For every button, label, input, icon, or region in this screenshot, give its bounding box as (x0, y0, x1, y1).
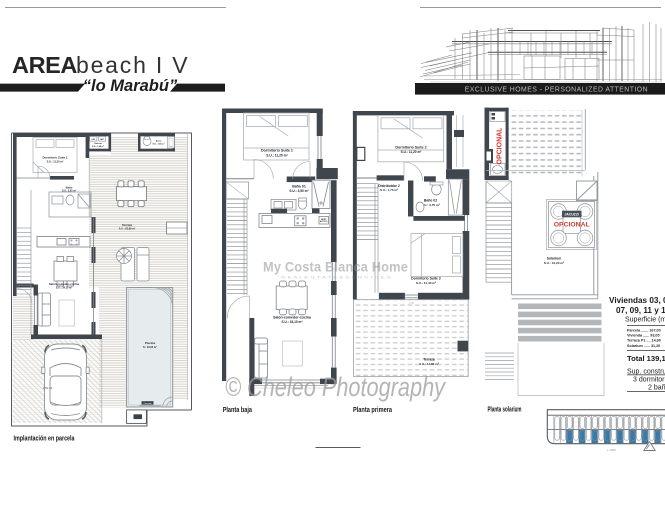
svg-text:S.U.: 1,65 m²: S.U.: 1,65 m² (152, 142, 164, 145)
svg-text:Cascada: Cascada (143, 403, 152, 405)
svg-text:Parcela ....... 167,00: Parcela ....... 167,00 (627, 329, 661, 333)
svg-text:EXCLUSIVE HOMES - PERSONALIZED: EXCLUSIVE HOMES - PERSONALIZED ATTENTION (465, 86, 648, 93)
svg-text:Dormitorio Suite 3: Dormitorio Suite 3 (411, 276, 441, 280)
svg-text:My Costa Blanca Home: My Costa Blanca Home (263, 260, 408, 275)
svg-text:Distribuidor 2: Distribuidor 2 (378, 184, 400, 188)
svg-text:S.U.: 11,20 m²: S.U.: 11,20 m² (266, 153, 288, 157)
svg-text:Planta solarium: Planta solarium (488, 405, 522, 414)
svg-text:07, 09, 11 y 13: 07, 09, 11 y 13 (616, 306, 665, 315)
svg-text:S.U.: 3,05 m²: S.U.: 3,05 m² (62, 189, 77, 193)
svg-text:S.U.: 34,10 m²: S.U.: 34,10 m² (56, 286, 73, 290)
svg-text:Viviendas 03, 05,: Viviendas 03, 05, (609, 296, 665, 305)
svg-text:Implantación en parcela: Implantación en parcela (14, 434, 76, 443)
svg-text:OPCIONAL: OPCIONAL (554, 222, 590, 229)
svg-text:e: 1/500: e: 1/500 (607, 449, 616, 452)
svg-text:Vivienda ...... 93,05: Vivienda ...... 93,05 (627, 334, 660, 338)
svg-text:S.: 18,22 m²: S.: 18,22 m² (143, 345, 157, 349)
svg-text:Terraza P1 .... 14,80: Terraza P1 .... 14,80 (627, 339, 661, 343)
svg-text:AREA: AREA (12, 52, 77, 78)
svg-text:3 dormitorios: 3 dormitorios (633, 377, 665, 384)
svg-text:S.U.: 11,20 m²: S.U.: 11,20 m² (401, 150, 422, 154)
svg-text:S.U.: 1,40 m²: S.U.: 1,40 m² (92, 145, 104, 148)
svg-text:Aseo: Aseo (156, 140, 162, 143)
svg-text:Salón-comedor-cocina: Salón-comedor-cocina (49, 282, 80, 286)
svg-text:Salón-comedor-cocina: Salón-comedor-cocina (273, 316, 311, 320)
svg-text:“lo Marabú”: “lo Marabú” (83, 77, 178, 95)
svg-text:Baño 01: Baño 01 (292, 184, 306, 188)
svg-text:OPCIONAL: OPCIONAL (497, 127, 504, 165)
svg-text:Total 139,10: Total 139,10 (627, 354, 665, 363)
svg-text:Baño 02: Baño 02 (424, 199, 437, 203)
svg-text:© Cheleo Photography: © Cheleo Photography (225, 372, 446, 402)
svg-text:S.U.: 1,75 m²: S.U.: 1,75 m² (380, 188, 398, 192)
svg-text:S.U.: 34,10 m²: S.U.: 34,10 m² (282, 320, 303, 324)
svg-text:Planta baja: Planta baja (223, 405, 253, 414)
svg-text:beach I V: beach I V (76, 52, 189, 78)
svg-text:JACUZZI: JACUZZI (565, 213, 579, 217)
svg-text:S.U.: 11,40 m²: S.U.: 11,40 m² (416, 281, 436, 285)
svg-text:Superficie (m²): Superficie (m²) (625, 317, 665, 324)
svg-text:Planta primera: Planta primera (353, 405, 393, 414)
svg-text:S.U.: 11,20 m²: S.U.: 11,20 m² (47, 160, 64, 164)
svg-text:ALTILLO: ALTILLO (320, 220, 328, 223)
svg-text:2 baños: 2 baños (648, 385, 665, 392)
svg-text:Solarium: Solarium (547, 257, 562, 261)
svg-text:Dormitorio Suite 2: Dormitorio Suite 2 (395, 145, 426, 149)
svg-text:S.U.: 3,50 m²: S.U.: 3,50 m² (289, 189, 308, 193)
svg-text:Solarium ...... 31,20: Solarium ...... 31,20 (627, 344, 660, 348)
svg-text:Dormitorio Suite 1: Dormitorio Suite 1 (42, 156, 67, 160)
svg-text:Dormitorio Suite 1: Dormitorio Suite 1 (261, 149, 293, 153)
svg-text:Galería: Galería (94, 143, 102, 145)
svg-text:Terraza: Terraza (122, 223, 132, 227)
svg-text:A.U.: 83,86 m²: A.U.: 83,86 m² (119, 227, 136, 231)
svg-text:FTE-06: FTE-06 (43, 386, 53, 390)
svg-text:R E A L E S T A T E & S: R E A L E S T A T E & S E R V I C E S (281, 275, 392, 279)
svg-text:Terraza: Terraza (423, 358, 435, 362)
svg-text:Sup. construida: Sup. construida (627, 369, 665, 376)
svg-text:Piscina: Piscina (145, 341, 156, 345)
svg-text:S.U.: 14,80 m²: S.U.: 14,80 m² (419, 362, 439, 366)
svg-text:S.U.: 31,20 m²: S.U.: 31,20 m² (544, 261, 564, 265)
